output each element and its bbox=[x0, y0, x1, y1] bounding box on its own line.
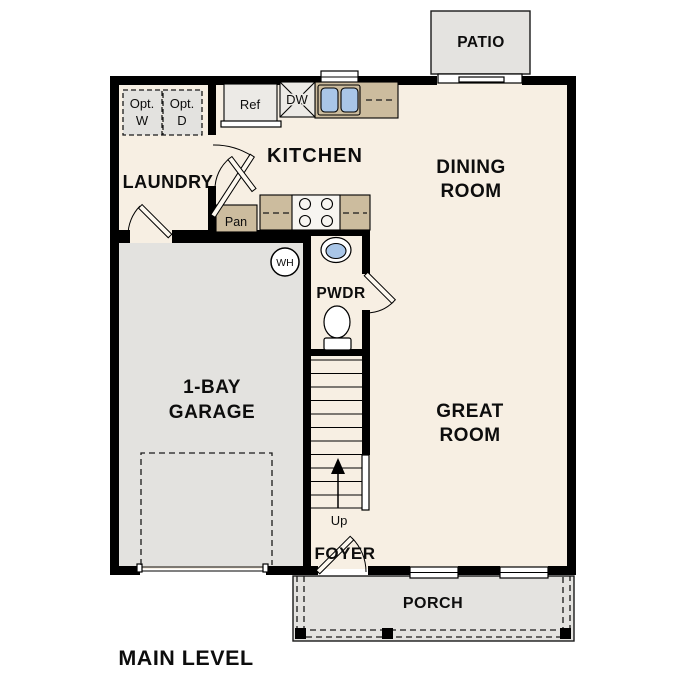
optional-dryer-label-1: Opt. bbox=[170, 96, 195, 111]
porch-post bbox=[295, 628, 306, 639]
foyer-label: FOYER bbox=[314, 544, 375, 563]
cooktop bbox=[292, 195, 340, 230]
porch-label: PORCH bbox=[403, 595, 463, 612]
refrigerator-label: Ref bbox=[240, 97, 261, 112]
pwdr-label: PWDR bbox=[316, 285, 365, 302]
dining-room-label-1: DINING bbox=[436, 157, 506, 178]
dining-room-label-2: ROOM bbox=[440, 181, 501, 202]
optional-washer-label-2: W bbox=[136, 113, 149, 128]
stair-run bbox=[311, 356, 362, 508]
pwdr-sink-basin bbox=[326, 244, 346, 259]
patio-label: PATIO bbox=[457, 34, 505, 51]
toilet-tank bbox=[324, 338, 351, 350]
sink-basin bbox=[321, 88, 338, 112]
laundry-label: LAUNDRY bbox=[123, 172, 214, 192]
water-heater-label: WH bbox=[276, 257, 294, 269]
floor-plan-drawing: PATIO PORCH bbox=[0, 0, 687, 687]
garage-door-jamb bbox=[137, 564, 142, 572]
sink-basin bbox=[341, 88, 358, 112]
garage-label-2: GARAGE bbox=[169, 402, 255, 423]
great-room-label-2: ROOM bbox=[439, 425, 500, 446]
kitchen-label: KITCHEN bbox=[267, 145, 363, 167]
garage-door-jamb bbox=[263, 564, 268, 572]
garage-label-1: 1-BAY bbox=[183, 377, 241, 398]
dishwasher-label: DW bbox=[286, 92, 308, 107]
pantry-label: Pan bbox=[225, 215, 247, 229]
room-patio: PATIO bbox=[431, 11, 530, 74]
patio-sliding-door-panel bbox=[459, 77, 504, 82]
optional-washer-label-1: Opt. bbox=[130, 96, 155, 111]
refrigerator-door bbox=[221, 121, 281, 127]
laundry-fixtures: Opt. W Opt. D bbox=[123, 90, 202, 135]
toilet-bowl bbox=[324, 306, 350, 338]
stair-rail bbox=[362, 455, 369, 510]
plan-title: MAIN LEVEL bbox=[118, 646, 253, 670]
porch-post bbox=[382, 628, 393, 639]
stairs-up-label: Up bbox=[331, 513, 348, 528]
stairs: Up bbox=[311, 356, 369, 528]
floor-plan: PATIO PORCH bbox=[0, 0, 687, 687]
water-heater: WH bbox=[271, 248, 299, 276]
porch-post bbox=[560, 628, 571, 639]
optional-dryer-label-2: D bbox=[177, 113, 186, 128]
room-porch: PORCH bbox=[293, 576, 574, 641]
great-room-label-1: GREAT bbox=[436, 401, 504, 422]
